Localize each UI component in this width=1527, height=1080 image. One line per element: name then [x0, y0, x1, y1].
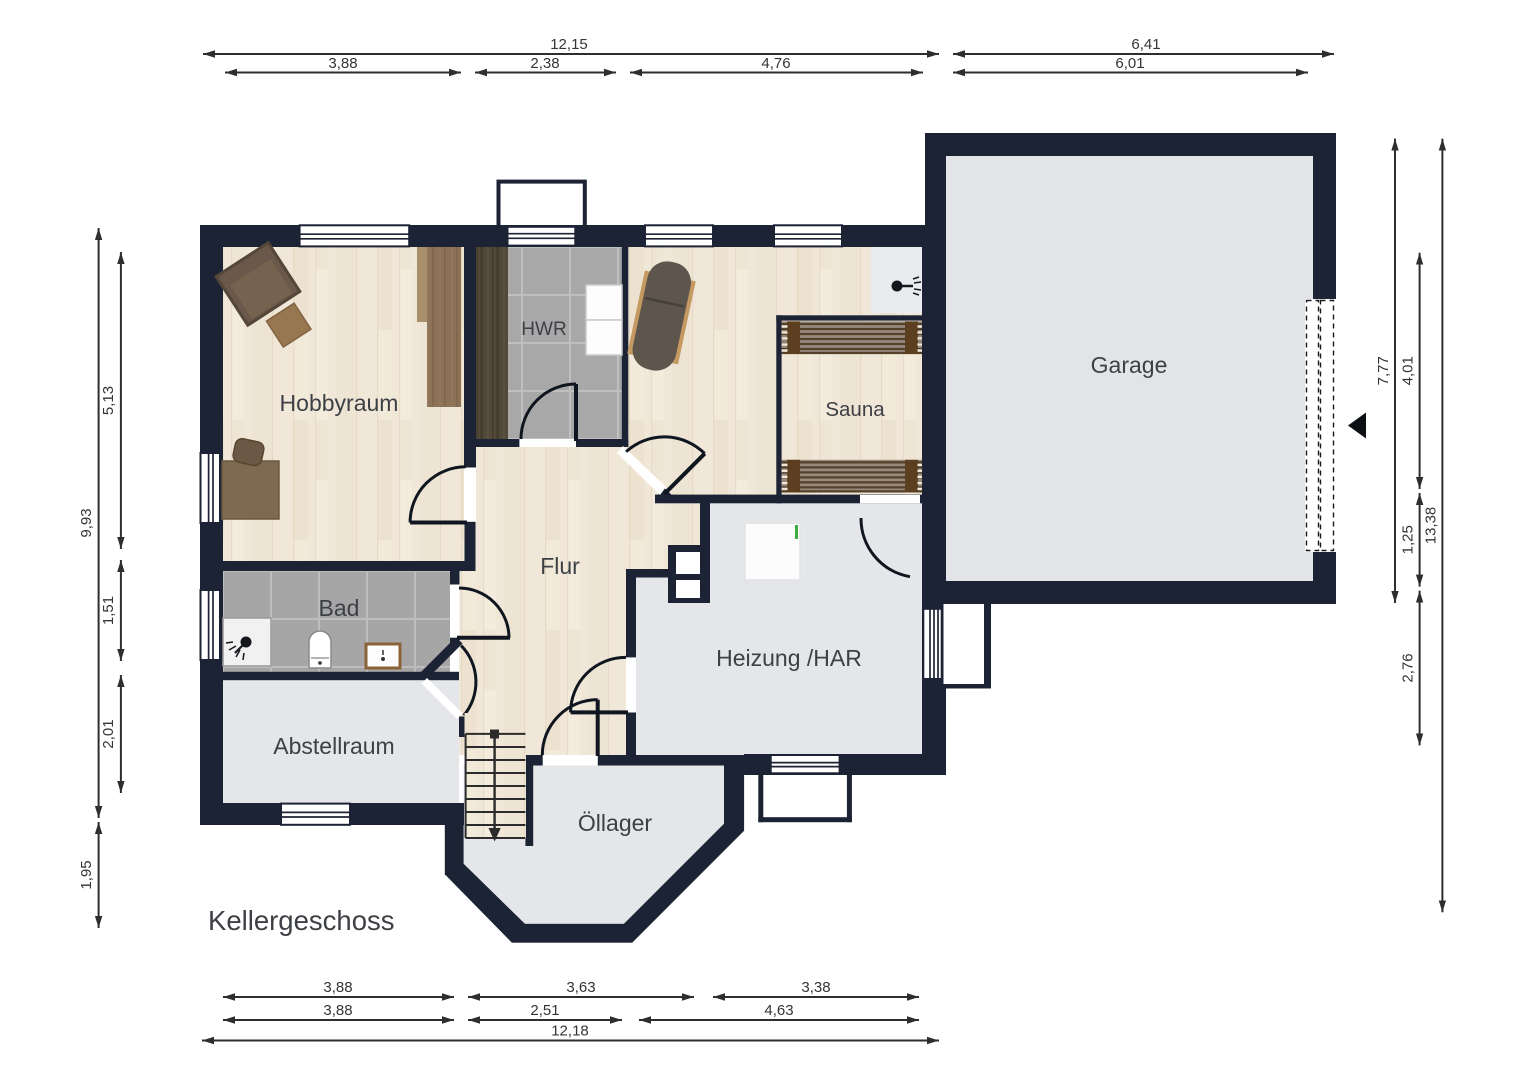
svg-text:Hobbyraum: Hobbyraum: [280, 390, 399, 416]
svg-text:Bad: Bad: [319, 595, 360, 621]
svg-text:12,15: 12,15: [550, 36, 588, 53]
svg-text:Heizung /HAR: Heizung /HAR: [716, 645, 862, 671]
svg-text:4,76: 4,76: [761, 55, 790, 72]
svg-text:5,13: 5,13: [100, 386, 117, 415]
svg-text:Öllager: Öllager: [578, 810, 652, 836]
svg-text:1,95: 1,95: [78, 860, 95, 889]
svg-text:3,88: 3,88: [323, 979, 352, 996]
svg-text:Garage: Garage: [1091, 352, 1168, 378]
svg-text:2,38: 2,38: [530, 55, 559, 72]
svg-text:4,63: 4,63: [764, 1002, 793, 1019]
svg-text:HWR: HWR: [521, 319, 566, 340]
svg-text:3,88: 3,88: [323, 1002, 352, 1019]
svg-text:Sauna: Sauna: [825, 398, 885, 421]
svg-text:9,93: 9,93: [78, 508, 95, 537]
svg-text:3,88: 3,88: [328, 55, 357, 72]
svg-text:2,51: 2,51: [530, 1002, 559, 1019]
svg-text:1,51: 1,51: [100, 596, 117, 625]
svg-text:3,63: 3,63: [566, 979, 595, 996]
svg-text:1,25: 1,25: [1400, 525, 1417, 554]
svg-text:Abstellraum: Abstellraum: [273, 733, 394, 759]
svg-text:7,77: 7,77: [1375, 356, 1392, 385]
svg-text:6,41: 6,41: [1131, 36, 1160, 53]
svg-text:6,01: 6,01: [1115, 55, 1144, 72]
svg-text:13,38: 13,38: [1422, 507, 1439, 545]
svg-text:Kellergeschoss: Kellergeschoss: [208, 905, 394, 936]
svg-text:4,01: 4,01: [1400, 356, 1417, 385]
svg-text:2,01: 2,01: [100, 719, 117, 748]
svg-text:3,38: 3,38: [801, 979, 830, 996]
svg-text:2,76: 2,76: [1400, 653, 1417, 682]
svg-text:12,18: 12,18: [551, 1023, 589, 1040]
svg-text:Flur: Flur: [540, 553, 580, 579]
